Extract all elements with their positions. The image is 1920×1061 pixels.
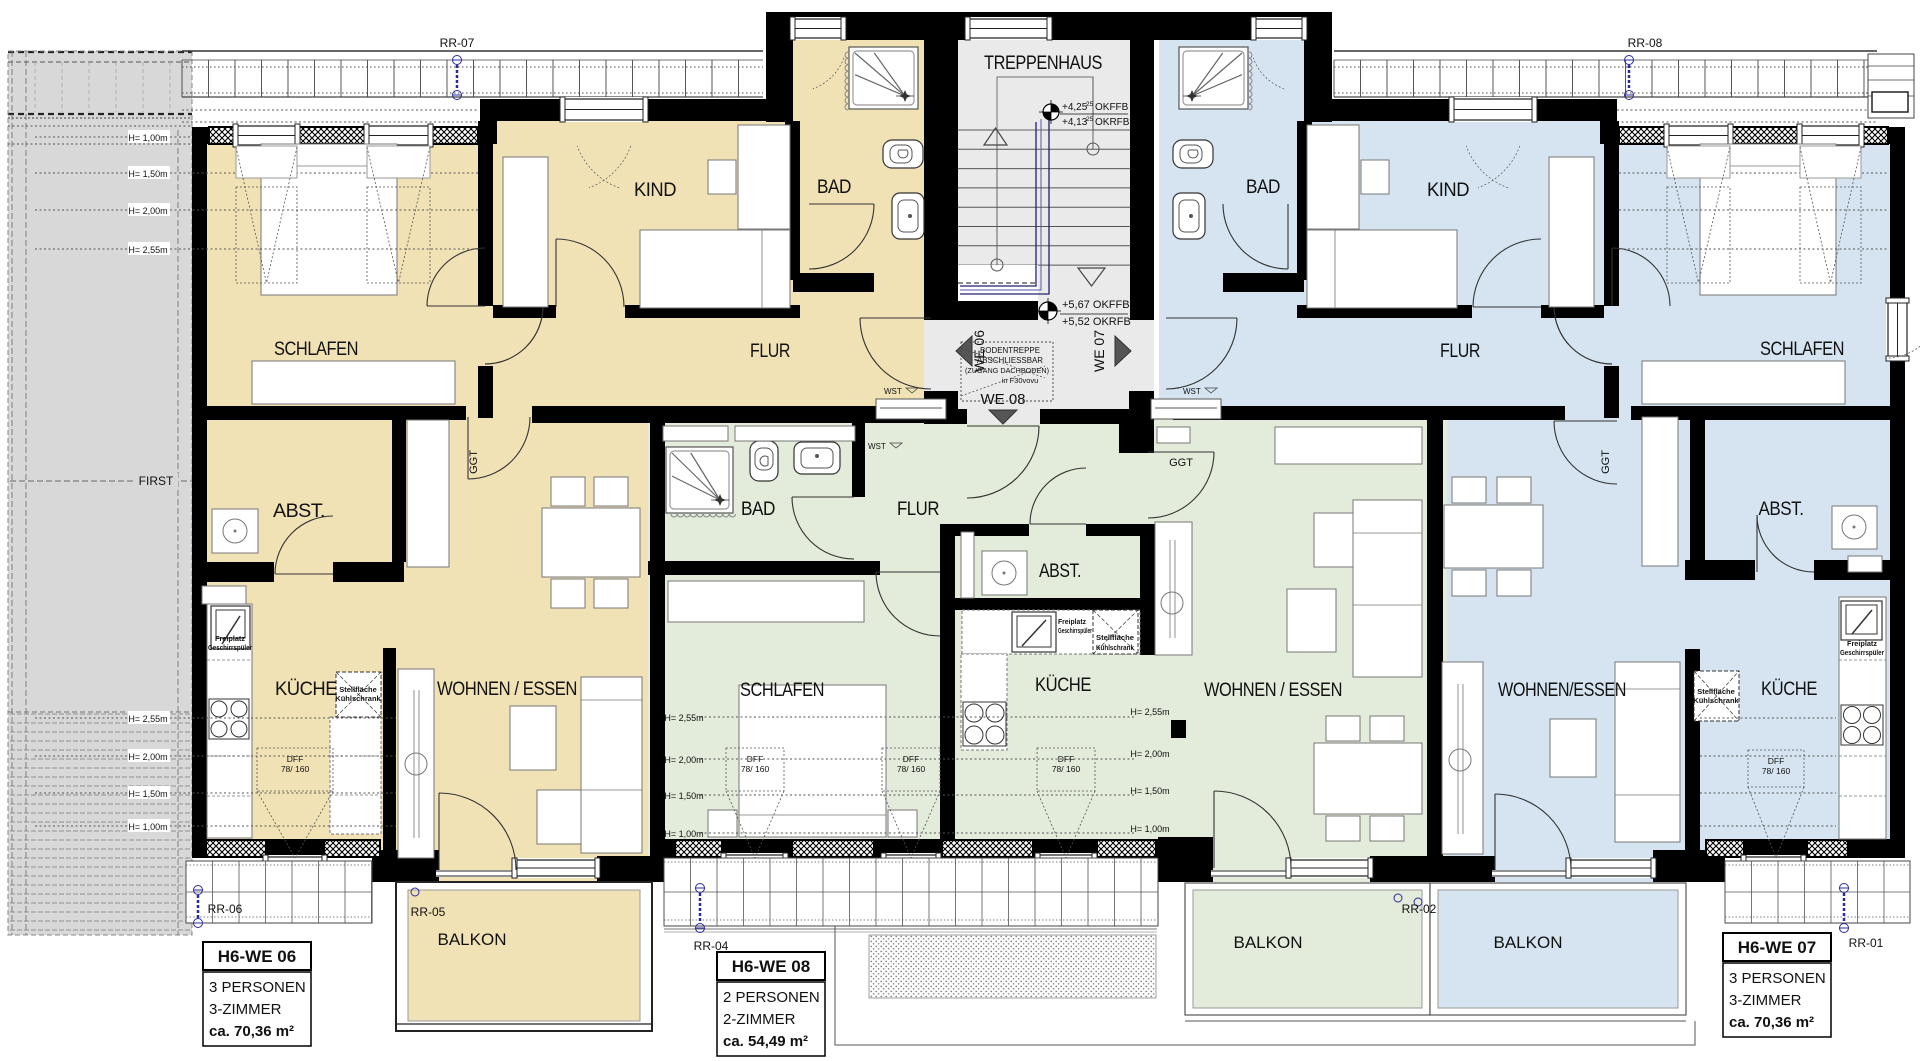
svg-text:RR-02: RR-02 xyxy=(1402,902,1437,916)
svg-text:H6-WE 06: H6-WE 06 xyxy=(218,947,296,966)
svg-text:H= 1,00m: H= 1,00m xyxy=(128,822,167,832)
svg-text:H= 1,50m: H= 1,50m xyxy=(1130,786,1169,796)
svg-text:H= 2,55m: H= 2,55m xyxy=(1130,707,1169,717)
svg-text:OKRFB: OKRFB xyxy=(1095,117,1130,128)
svg-text:RR-07: RR-07 xyxy=(440,36,475,50)
svg-text:DFF: DFF xyxy=(903,754,920,764)
svg-text:BAD: BAD xyxy=(1246,177,1280,198)
svg-text:+4,25: +4,25 xyxy=(1062,102,1088,113)
svg-text:H= 1,50m: H= 1,50m xyxy=(128,789,167,799)
svg-text:DFF: DFF xyxy=(1058,754,1075,764)
svg-text:2-ZIMMER: 2-ZIMMER xyxy=(723,1011,796,1028)
svg-text:78/ 160: 78/ 160 xyxy=(897,764,926,774)
svg-text:ABST.: ABST. xyxy=(273,501,325,522)
svg-text:TREPPENHAUS: TREPPENHAUS xyxy=(984,53,1102,74)
svg-text:RR-05: RR-05 xyxy=(411,905,446,919)
svg-text:WOHNEN / ESSEN: WOHNEN / ESSEN xyxy=(437,679,577,700)
svg-text:FIRST: FIRST xyxy=(139,474,174,488)
svg-text:SCHLAFEN: SCHLAFEN xyxy=(740,680,824,701)
svg-text:H= 2,00m: H= 2,00m xyxy=(128,206,167,216)
svg-text:SCHLAFEN: SCHLAFEN xyxy=(1760,339,1844,360)
svg-text:H= 1,50m: H= 1,50m xyxy=(128,169,167,179)
svg-text:KÜCHE: KÜCHE xyxy=(1761,679,1817,700)
svg-text:RR-01: RR-01 xyxy=(1849,936,1884,950)
svg-text:Kühlschrank: Kühlschrank xyxy=(1693,696,1739,705)
svg-text:ABST.: ABST. xyxy=(1759,499,1804,520)
svg-text:(ZUGANG DACHBODEN): (ZUGANG DACHBODEN) xyxy=(965,366,1049,375)
svg-text:Stellfläche: Stellfläche xyxy=(1096,635,1134,642)
svg-text:FLUR: FLUR xyxy=(897,499,939,520)
svg-text:OKFFB: OKFFB xyxy=(1095,102,1129,113)
svg-text:H= 2,55m: H= 2,55m xyxy=(128,245,167,255)
svg-text:25: 25 xyxy=(1086,101,1094,108)
svg-text:78/ 160: 78/ 160 xyxy=(1762,766,1791,776)
svg-text:25: 25 xyxy=(1086,116,1094,123)
svg-text:DFF: DFF xyxy=(287,754,304,764)
svg-text:Stellfläche: Stellfläche xyxy=(339,685,377,694)
svg-text:Stellfläche: Stellfläche xyxy=(1697,687,1735,696)
svg-text:H= 1,50m: H= 1,50m xyxy=(664,791,703,801)
svg-text:WE 08: WE 08 xyxy=(980,391,1025,408)
svg-text:RR-04: RR-04 xyxy=(694,939,729,953)
svg-text:KIND: KIND xyxy=(634,180,676,201)
svg-text:78/ 160: 78/ 160 xyxy=(281,764,310,774)
svg-text:H= 1,00m: H= 1,00m xyxy=(128,133,167,143)
svg-text:Kühlschrank: Kühlschrank xyxy=(335,694,381,703)
svg-text:Geschirrspüler: Geschirrspüler xyxy=(208,643,252,652)
svg-text:BALKON: BALKON xyxy=(438,930,507,949)
svg-text:SCHLAFEN: SCHLAFEN xyxy=(274,339,358,360)
svg-text:H6-WE 08: H6-WE 08 xyxy=(732,957,810,976)
svg-text:Kühlschrank: Kühlschrank xyxy=(1096,645,1134,652)
svg-text:H= 2,55m: H= 2,55m xyxy=(664,713,703,723)
svg-text:H6-WE 07: H6-WE 07 xyxy=(1738,938,1816,957)
svg-text:ABST.: ABST. xyxy=(1039,561,1081,582)
svg-text:BAD: BAD xyxy=(817,177,851,198)
svg-text:WOHNEN / ESSEN: WOHNEN / ESSEN xyxy=(1204,680,1342,701)
svg-text:ca. 70,36 m²: ca. 70,36 m² xyxy=(1729,1014,1814,1031)
svg-text:BALKON: BALKON xyxy=(1494,933,1563,952)
svg-text:Freiplatz: Freiplatz xyxy=(1058,619,1086,626)
svg-text:RR-06: RR-06 xyxy=(208,902,243,916)
svg-text:3 PERSONEN: 3 PERSONEN xyxy=(1729,970,1826,987)
svg-text:H= 2,00m: H= 2,00m xyxy=(128,752,167,762)
svg-text:+4,13: +4,13 xyxy=(1062,117,1088,128)
svg-text:3 PERSONEN: 3 PERSONEN xyxy=(209,979,306,996)
svg-text:H= 2,00m: H= 2,00m xyxy=(1130,749,1169,759)
svg-text:BODENTREPPE: BODENTREPPE xyxy=(980,346,1040,355)
svg-text:+5,52 OKRFB: +5,52 OKRFB xyxy=(1062,316,1131,328)
svg-text:KÜCHE: KÜCHE xyxy=(275,679,337,700)
svg-text:FLUR: FLUR xyxy=(1440,341,1480,362)
svg-text:WE 07: WE 07 xyxy=(1091,330,1107,372)
svg-text:GGT: GGT xyxy=(1600,450,1612,474)
svg-text:2 PERSONEN: 2 PERSONEN xyxy=(723,989,820,1006)
svg-text:WST: WST xyxy=(1183,387,1201,396)
svg-text:DFF: DFF xyxy=(1768,756,1785,766)
svg-text:RR-08: RR-08 xyxy=(1628,36,1663,50)
svg-text:ca. 70,36 m²: ca. 70,36 m² xyxy=(209,1023,294,1040)
svg-text:Geschirrspüler: Geschirrspüler xyxy=(1058,628,1092,635)
svg-text:KÜCHE: KÜCHE xyxy=(1035,675,1091,696)
svg-text:H= 2,00m: H= 2,00m xyxy=(664,755,703,765)
svg-text:78/ 160: 78/ 160 xyxy=(1052,764,1081,774)
svg-text:WST: WST xyxy=(884,387,902,396)
svg-text:3-ZIMMER: 3-ZIMMER xyxy=(209,1001,282,1018)
svg-text:ca. 54,49 m²: ca. 54,49 m² xyxy=(723,1033,808,1050)
svg-text:ABSCHLIESSBAR: ABSCHLIESSBAR xyxy=(977,356,1043,365)
svg-text:Freiplatz: Freiplatz xyxy=(1847,639,1877,648)
svg-text:WST: WST xyxy=(868,442,886,451)
svg-text:Geschirrspüler: Geschirrspüler xyxy=(1840,648,1884,657)
svg-text:GGT: GGT xyxy=(468,450,480,474)
svg-text:KIND: KIND xyxy=(1427,180,1469,201)
svg-text:DFF: DFF xyxy=(747,754,764,764)
svg-text:+5,67 OKFFB: +5,67 OKFFB xyxy=(1062,299,1130,311)
svg-text:H= 2,55m: H= 2,55m xyxy=(128,714,167,724)
svg-text:BAD: BAD xyxy=(741,499,775,520)
svg-text:H= 1,00m: H= 1,00m xyxy=(664,829,703,839)
svg-text:WOHNEN/ESSEN: WOHNEN/ESSEN xyxy=(1498,680,1626,701)
svg-text:FLUR: FLUR xyxy=(750,341,790,362)
svg-text:BALKON: BALKON xyxy=(1234,933,1303,952)
svg-text:in F30vovu: in F30vovu xyxy=(1002,376,1039,385)
svg-text:3-ZIMMER: 3-ZIMMER xyxy=(1729,992,1802,1009)
svg-text:GGT: GGT xyxy=(1169,457,1193,469)
svg-text:H= 1,00m: H= 1,00m xyxy=(1130,824,1169,834)
svg-text:Freiplatz: Freiplatz xyxy=(215,634,245,643)
svg-text:78/ 160: 78/ 160 xyxy=(741,764,770,774)
